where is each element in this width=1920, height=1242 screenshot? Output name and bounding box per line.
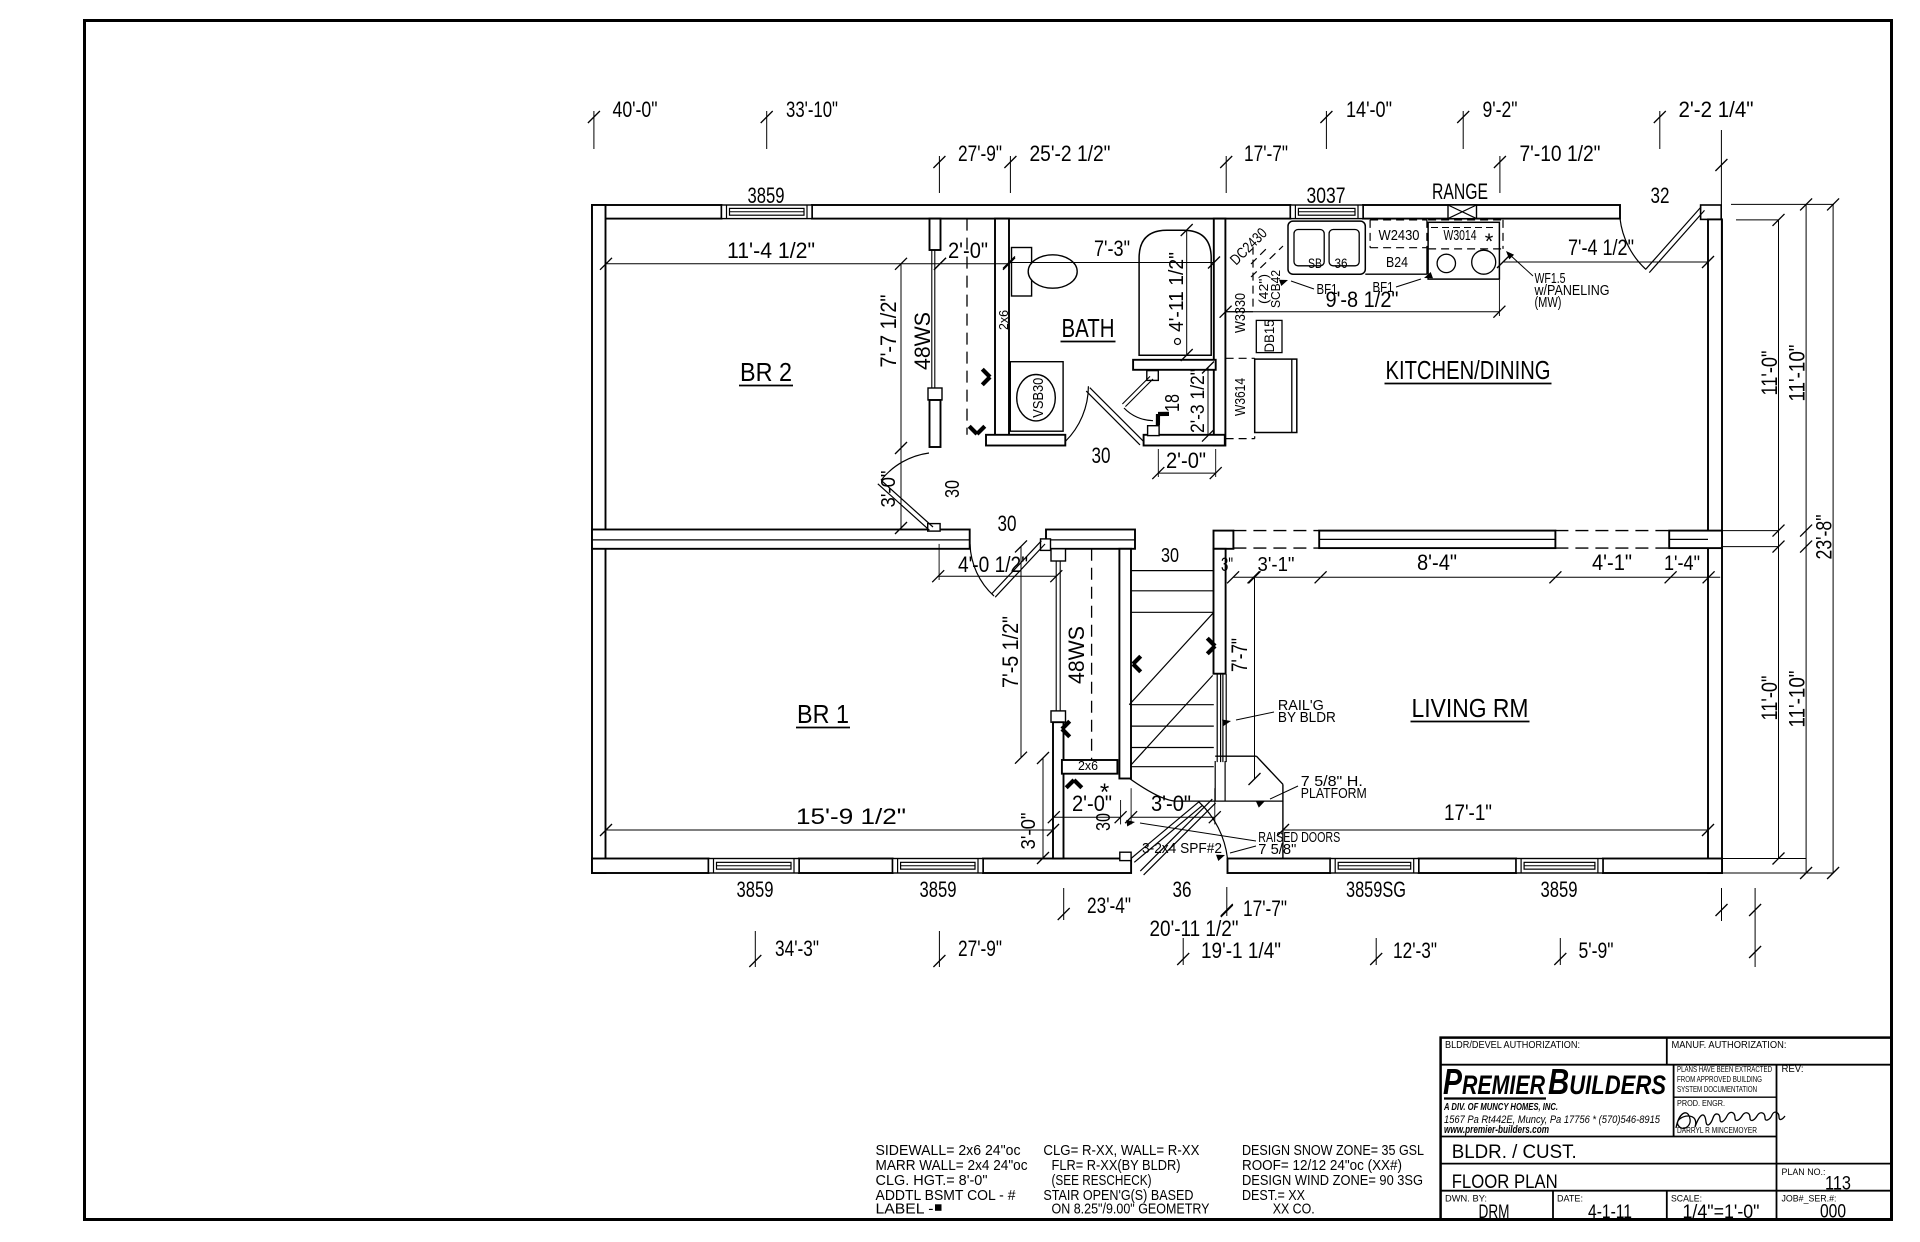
svg-text:FLOOR PLAN: FLOOR PLAN — [1452, 1172, 1558, 1193]
svg-text:8'-4": 8'-4" — [1417, 550, 1457, 575]
svg-text:000: 000 — [1820, 1202, 1846, 1223]
svg-text:2x6: 2x6 — [996, 310, 1011, 330]
svg-text:VSB30: VSB30 — [1030, 378, 1047, 418]
svg-text:KITCHEN/DINING: KITCHEN/DINING — [1386, 355, 1551, 385]
svg-text:CLG. HGT.= 8'-0": CLG. HGT.= 8'-0" — [876, 1173, 988, 1189]
svg-text:BY BLDR: BY BLDR — [1278, 709, 1336, 726]
svg-text:4'-0 1/2": 4'-0 1/2" — [958, 552, 1028, 577]
svg-text:BLDR/DEVEL AUTHORIZATION:: BLDR/DEVEL AUTHORIZATION: — [1445, 1040, 1580, 1051]
svg-text:DB15: DB15 — [1261, 319, 1277, 352]
svg-text:CLG= R-XX, WALL= R-XX: CLG= R-XX, WALL= R-XX — [1043, 1143, 1199, 1159]
svg-text:*: * — [1100, 779, 1109, 806]
svg-text:LIVING RM: LIVING RM — [1412, 693, 1529, 723]
svg-text:DATE:: DATE: — [1557, 1194, 1583, 1205]
svg-text:BF1: BF1 — [1373, 279, 1394, 296]
svg-text:(SEE RESCHECK): (SEE RESCHECK) — [1052, 1173, 1152, 1189]
svg-text:30: 30 — [1092, 443, 1111, 468]
svg-text:30: 30 — [998, 511, 1017, 536]
svg-text:7'-4 1/2": 7'-4 1/2" — [1568, 235, 1634, 260]
svg-text:48WS: 48WS — [910, 312, 935, 370]
svg-text:(MW): (MW) — [1535, 294, 1562, 311]
svg-text:2'-0": 2'-0" — [1166, 448, 1206, 473]
svg-text:3'-0": 3'-0" — [1018, 813, 1040, 850]
svg-text:PROD. ENGR.: PROD. ENGR. — [1677, 1098, 1725, 1108]
svg-text:27'-9": 27'-9" — [958, 141, 1002, 166]
svg-text:PLANS HAVE BEEN EXTRACTED: PLANS HAVE BEEN EXTRACTED — [1677, 1064, 1772, 1074]
svg-text:3859: 3859 — [920, 877, 957, 902]
svg-text:2'-3 1/2": 2'-3 1/2" — [1188, 369, 1209, 433]
svg-text:FLR= R-XX(BY BLDR): FLR= R-XX(BY BLDR) — [1052, 1158, 1181, 1174]
svg-text:XX CO.: XX CO. — [1273, 1201, 1315, 1217]
svg-text:4-1-11: 4-1-11 — [1588, 1202, 1632, 1223]
svg-text:17'-7": 17'-7" — [1244, 141, 1288, 166]
svg-text:27'-9": 27'-9" — [958, 936, 1002, 961]
svg-text:30: 30 — [942, 480, 964, 498]
svg-text:7'-5 1/2": 7'-5 1/2" — [998, 616, 1023, 688]
svg-text:30: 30 — [1161, 545, 1179, 567]
svg-text:14'-0": 14'-0" — [1346, 97, 1392, 122]
svg-text:3'-0": 3'-0" — [1151, 791, 1191, 816]
svg-text:BLDR. / CUST.: BLDR. / CUST. — [1452, 1142, 1577, 1163]
svg-text:DESIGN WIND ZONE= 90 3SG: DESIGN WIND ZONE= 90 3SG — [1242, 1173, 1423, 1189]
svg-text:48WS: 48WS — [1064, 626, 1089, 684]
svg-text:11'-10": 11'-10" — [1785, 345, 1810, 402]
svg-text:W2430: W2430 — [1379, 227, 1420, 244]
svg-text:3859: 3859 — [737, 877, 774, 902]
svg-text:7'-10 1/2": 7'-10 1/2" — [1520, 141, 1601, 166]
svg-text:36: 36 — [1335, 255, 1348, 271]
svg-text:ON 8.25"/9.00" GEOMETRY: ON 8.25"/9.00" GEOMETRY — [1052, 1201, 1210, 1217]
svg-text:15'-9 1/2": 15'-9 1/2" — [796, 804, 906, 829]
svg-text:2'-2 1/4": 2'-2 1/4" — [1679, 97, 1754, 122]
svg-text:3'-1": 3'-1" — [1258, 554, 1295, 576]
svg-text:3859: 3859 — [1541, 877, 1578, 902]
svg-text:23'-4": 23'-4" — [1087, 893, 1131, 918]
svg-text:DARRYL R MINCEMOYER: DARRYL R MINCEMOYER — [1677, 1126, 1757, 1135]
svg-text:FROM APPROVED BUILDING: FROM APPROVED BUILDING — [1677, 1074, 1762, 1084]
svg-text:33'-10": 33'-10" — [786, 97, 838, 122]
svg-text:MARR WALL= 2x4 24"oc: MARR WALL= 2x4 24"oc — [876, 1158, 1028, 1174]
svg-text:3": 3" — [1221, 555, 1233, 576]
svg-text:12'-3": 12'-3" — [1393, 938, 1437, 963]
svg-text:11'-10": 11'-10" — [1785, 671, 1810, 728]
svg-text:2x6: 2x6 — [1078, 758, 1098, 773]
svg-text:36: 36 — [1173, 877, 1192, 902]
svg-text:3037: 3037 — [1307, 183, 1346, 208]
svg-text:25'-2 1/2": 25'-2 1/2" — [1030, 141, 1111, 166]
svg-text:BF1: BF1 — [1317, 281, 1338, 298]
svg-text:SIDEWALL= 2x6 24"oc: SIDEWALL= 2x6 24"oc — [876, 1143, 1021, 1159]
svg-text:ROOF= 12/12 24"oc (XX#): ROOF= 12/12 24"oc (XX#) — [1242, 1158, 1402, 1174]
svg-text:17'-7": 17'-7" — [1243, 896, 1287, 921]
svg-text:2'-0": 2'-0" — [948, 238, 988, 263]
svg-text:W3330: W3330 — [1232, 293, 1249, 333]
svg-text:*: * — [1485, 229, 1494, 254]
svg-text:1'-4": 1'-4" — [1664, 552, 1700, 575]
svg-text:W3014: W3014 — [1444, 227, 1477, 244]
svg-text:SCB42: SCB42 — [1268, 270, 1283, 308]
svg-text:BR 1: BR 1 — [797, 699, 849, 729]
svg-text:RANGE: RANGE — [1432, 179, 1488, 204]
svg-text:MANUF. AUTHORIZATION:: MANUF. AUTHORIZATION: — [1672, 1040, 1787, 1051]
svg-text:32: 32 — [1651, 183, 1670, 208]
svg-text:7'-7 1/2": 7'-7 1/2" — [876, 295, 901, 368]
svg-text:PLAN NO.:: PLAN NO.: — [1782, 1167, 1826, 1178]
svg-text:11'-0": 11'-0" — [1757, 676, 1782, 721]
svg-text:19'-1 1/4": 19'-1 1/4" — [1201, 938, 1281, 963]
svg-text:BATH: BATH — [1062, 313, 1115, 343]
svg-text:SYSTEM DOCUMENTATION: SYSTEM DOCUMENTATION — [1677, 1084, 1757, 1094]
svg-text:SB: SB — [1308, 255, 1322, 271]
svg-text:PLATFORM: PLATFORM — [1301, 785, 1367, 802]
svg-text:17'-1": 17'-1" — [1444, 800, 1492, 825]
svg-text:40'-0": 40'-0" — [613, 97, 658, 122]
svg-text:34'-3": 34'-3" — [775, 936, 819, 961]
svg-text:113: 113 — [1825, 1174, 1851, 1195]
svg-text:DRM: DRM — [1479, 1202, 1510, 1223]
svg-text:30: 30 — [1093, 813, 1115, 831]
svg-text:23'-8": 23'-8" — [1812, 515, 1837, 560]
svg-text:1/4"=1'-0": 1/4"=1'-0" — [1683, 1202, 1760, 1223]
svg-text:4'-11 1/2": 4'-11 1/2" — [1166, 252, 1188, 332]
svg-text:LABEL -: LABEL - — [876, 1201, 934, 1217]
svg-text:W3614: W3614 — [1232, 378, 1249, 416]
svg-text:7'-3": 7'-3" — [1094, 236, 1130, 261]
svg-text:9'-2": 9'-2" — [1483, 97, 1518, 122]
svg-text:5'-9": 5'-9" — [1579, 938, 1614, 963]
svg-text:3859SG: 3859SG — [1346, 877, 1406, 902]
svg-text:7'-7": 7'-7" — [1227, 638, 1252, 672]
svg-text:11'-4 1/2": 11'-4 1/2" — [727, 238, 815, 263]
svg-text:3859: 3859 — [748, 183, 785, 208]
svg-text:4'-1": 4'-1" — [1592, 550, 1632, 575]
svg-text:BR 2: BR 2 — [740, 357, 792, 387]
svg-text:11'-0": 11'-0" — [1757, 351, 1782, 396]
svg-text:B24: B24 — [1386, 254, 1408, 271]
svg-text:www.premier-builders.com: www.premier-builders.com — [1444, 1124, 1549, 1136]
svg-text:REV:: REV: — [1782, 1064, 1804, 1075]
svg-text:3'-0": 3'-0" — [878, 471, 900, 508]
svg-text:18: 18 — [1162, 394, 1184, 412]
svg-text:DESIGN SNOW ZONE= 35 GSL: DESIGN SNOW ZONE= 35 GSL — [1242, 1143, 1424, 1159]
svg-text:A DIV. OF MUNCY HOMES, INC.: A DIV. OF MUNCY HOMES, INC. — [1443, 1101, 1558, 1113]
svg-text:3-2x4 SPF#2: 3-2x4 SPF#2 — [1142, 840, 1222, 857]
svg-text:7 5/8": 7 5/8" — [1258, 841, 1296, 858]
